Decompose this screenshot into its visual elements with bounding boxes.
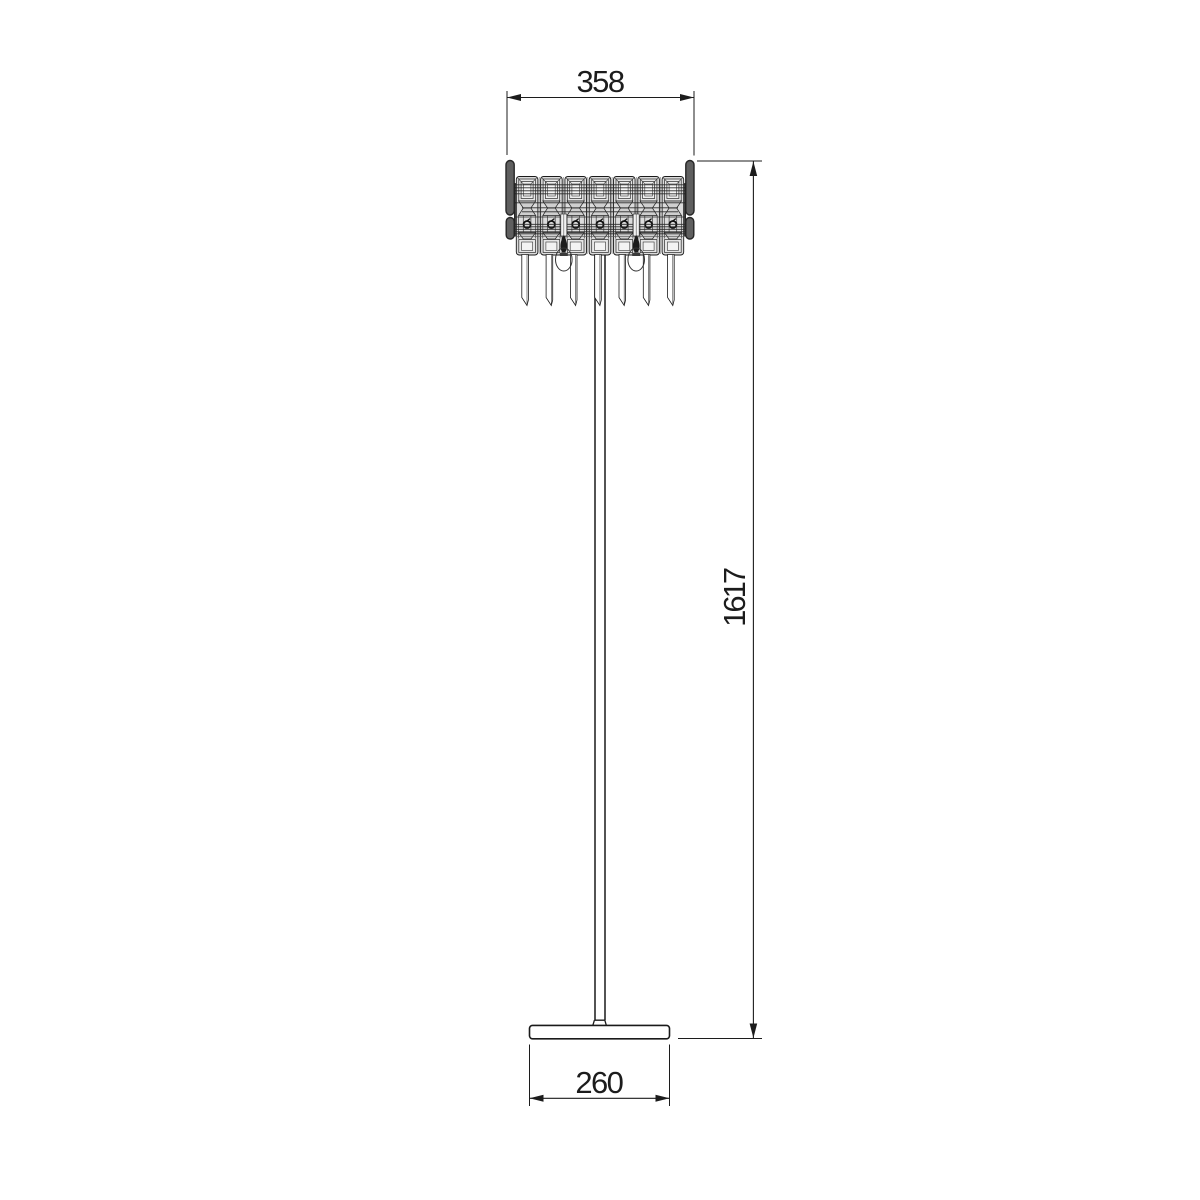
svg-text:358: 358 [577,64,624,99]
svg-text:1617: 1617 [717,568,752,627]
svg-text:260: 260 [575,1065,623,1100]
